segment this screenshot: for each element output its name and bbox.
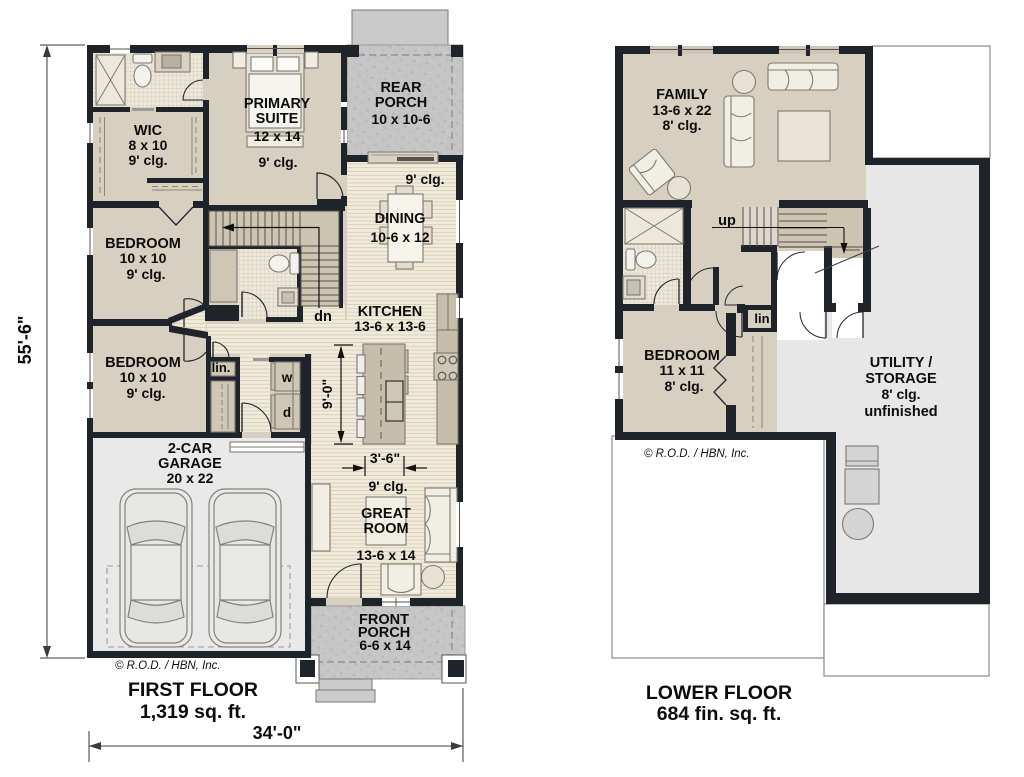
svg-text:9' clg.: 9' clg.: [258, 154, 297, 170]
svg-text:1,319 sq. ft.: 1,319 sq. ft.: [140, 701, 246, 723]
svg-text:9' clg.: 9' clg.: [405, 171, 444, 187]
svg-text:PRIMARY: PRIMARY: [244, 96, 311, 112]
svg-text:8 x 10: 8 x 10: [129, 137, 168, 153]
svg-text:DINING: DINING: [375, 211, 426, 227]
svg-text:lin.: lin.: [212, 360, 231, 375]
svg-text:SUITE: SUITE: [256, 111, 299, 127]
svg-text:10 x 10-6: 10 x 10-6: [371, 111, 430, 127]
svg-text:8' clg.: 8' clg.: [662, 117, 701, 133]
svg-text:8' clg.: 8' clg.: [664, 378, 703, 394]
svg-text:55'-6": 55'-6": [15, 316, 35, 365]
svg-text:up: up: [718, 213, 736, 229]
svg-text:9' clg.: 9' clg.: [128, 152, 167, 168]
svg-text:FIRST FLOOR: FIRST FLOOR: [128, 679, 258, 701]
svg-text:FAMILY: FAMILY: [656, 87, 708, 103]
svg-text:13-6 x 14: 13-6 x 14: [356, 547, 415, 563]
svg-text:10 x 10: 10 x 10: [120, 369, 167, 385]
svg-text:w: w: [281, 370, 293, 385]
svg-text:13-6 x 22: 13-6 x 22: [652, 102, 711, 118]
svg-text:STORAGE: STORAGE: [865, 371, 937, 387]
svg-text:13-6 x 13-6: 13-6 x 13-6: [354, 318, 426, 334]
svg-text:20 x 22: 20 x 22: [167, 470, 214, 486]
svg-text:2-CAR: 2-CAR: [168, 441, 213, 457]
svg-text:dn: dn: [314, 309, 332, 325]
svg-text:REAR: REAR: [380, 80, 422, 96]
svg-text:8' clg.: 8' clg.: [881, 386, 920, 402]
svg-text:d: d: [283, 405, 291, 420]
svg-text:GREAT: GREAT: [361, 506, 411, 522]
svg-text:PORCH: PORCH: [375, 95, 427, 111]
svg-text:© R.O.D. / HBN, Inc.: © R.O.D. / HBN, Inc.: [115, 660, 221, 672]
svg-text:ROOM: ROOM: [363, 521, 408, 537]
svg-text:34'-0": 34'-0": [253, 723, 302, 743]
svg-text:10-6 x 12: 10-6 x 12: [370, 229, 429, 245]
svg-text:6-6 x 14: 6-6 x 14: [359, 637, 411, 653]
svg-text:10 x 10: 10 x 10: [120, 250, 167, 266]
svg-text:9' clg.: 9' clg.: [368, 478, 407, 494]
svg-text:12 x 14: 12 x 14: [254, 128, 301, 144]
svg-text:LOWER FLOOR: LOWER FLOOR: [646, 682, 792, 704]
svg-text:9'-0": 9'-0": [319, 379, 335, 409]
svg-text:684 fin. sq. ft.: 684 fin. sq. ft.: [657, 703, 782, 725]
svg-text:9' clg.: 9' clg.: [126, 266, 165, 282]
svg-text:unfinished: unfinished: [864, 404, 937, 420]
svg-text:9' clg.: 9' clg.: [126, 385, 165, 401]
svg-text:lin: lin: [754, 311, 769, 326]
svg-text:© R.O.D. / HBN, Inc.: © R.O.D. / HBN, Inc.: [644, 448, 750, 460]
svg-text:UTILITY /: UTILITY /: [870, 355, 933, 371]
svg-text:3'-6": 3'-6": [370, 450, 400, 466]
svg-text:11 x 11: 11 x 11: [659, 362, 704, 378]
